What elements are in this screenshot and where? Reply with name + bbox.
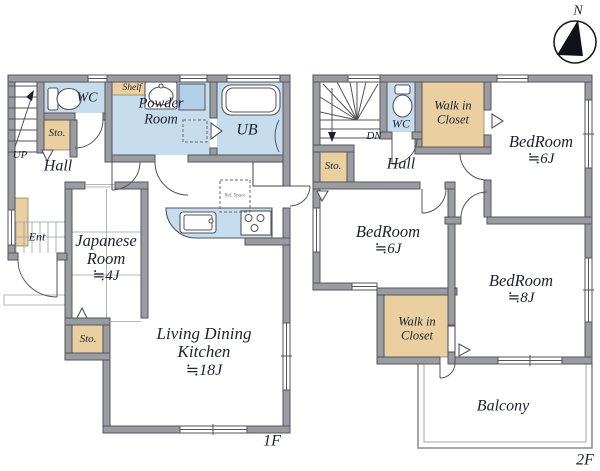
wic-lower-door-leaf: [448, 326, 455, 352]
ldk-name: Living Dining Kitchen: [134, 325, 274, 362]
label-floor1: 1F: [263, 432, 281, 449]
label-powder-room: Powder Room: [130, 96, 192, 127]
label-fridge-note: Ref. Space: [223, 193, 247, 199]
storage-lower-door-mark: [77, 308, 87, 318]
bedroom-ne-name: BedRoom: [509, 133, 573, 151]
porch-steps: [4, 295, 72, 305]
label-storage-upper-1f: Sto.: [49, 128, 66, 140]
label-floor2: 2F: [576, 451, 594, 468]
label-hall-1f: Hall: [44, 157, 72, 174]
label-shelf: Shelf: [123, 83, 142, 93]
label-storage-lower-1f: Sto.: [80, 334, 97, 346]
japanese-room-name: Japanese Room: [60, 232, 152, 268]
label-hall-2f: Hall: [387, 155, 415, 172]
bedroom-ne-size: ≒6J: [528, 151, 555, 167]
bedroom-west-size: ≒6J: [375, 241, 402, 257]
label-up: UP: [13, 150, 28, 162]
wic-lower-door-mark: [459, 344, 470, 356]
label-wc-2f: WC: [392, 118, 410, 131]
label-bedroom-northeast: BedRoom ≒6J: [509, 133, 573, 167]
label-bedroom-southeast: BedRoom ≒8J: [489, 272, 553, 306]
floor2-plan: [313, 75, 594, 448]
bedroom-se-size: ≒8J: [508, 290, 535, 306]
cabinet-1f: [253, 162, 283, 186]
toilet-icon-2f: [393, 85, 412, 117]
label-ldk: Living Dining Kitchen ≒18J: [134, 325, 274, 379]
label-dn: DN: [366, 131, 381, 143]
label-unit-bath: UB: [236, 121, 257, 138]
bedroom-west-name: BedRoom: [356, 223, 420, 241]
bedroom-se-name: BedRoom: [489, 272, 553, 290]
floor-plan-page: Hall UP WC Sto. Shelf Powder Room UB Ent…: [0, 0, 600, 471]
japanese-room-size: ≒4J: [93, 268, 120, 284]
compass: [554, 20, 596, 63]
label-wic-upper: Walk in Closet: [421, 100, 485, 127]
label-bedroom-west: BedRoom ≒6J: [356, 223, 420, 257]
label-wic-lower: Walk in Closet: [388, 316, 446, 343]
wic-upper-door-mark: [492, 114, 503, 128]
kitchen-counter: [166, 208, 272, 238]
ldk-size: ≒18J: [186, 362, 223, 379]
label-balcony: Balcony: [477, 397, 529, 414]
stove-icon: [241, 211, 271, 235]
label-storage-2f: Sto.: [325, 161, 342, 173]
label-entrance: Ent: [29, 231, 46, 244]
label-japanese-room: Japanese Room ≒4J: [60, 232, 152, 284]
label-compass-north: N: [573, 3, 582, 18]
label-wc-1f: WC: [77, 90, 98, 105]
